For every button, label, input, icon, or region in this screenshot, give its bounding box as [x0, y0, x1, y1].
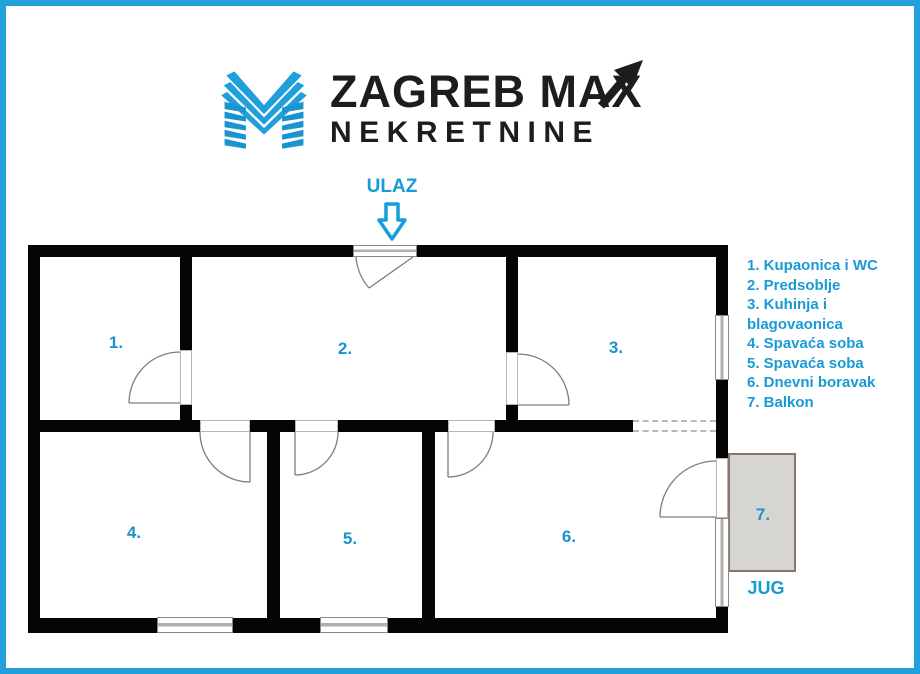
brand-subtitle: NEKRETNINE	[330, 117, 650, 149]
room-label-6: 6.	[562, 527, 576, 547]
wall-segment	[40, 420, 200, 432]
wall-segment	[716, 380, 728, 458]
wall-segment	[233, 618, 320, 633]
window-room3	[715, 315, 729, 380]
room-label-5: 5.	[343, 529, 357, 549]
wall-segment	[388, 618, 728, 633]
wall-segment	[506, 257, 518, 352]
room-label-7: 7.	[756, 505, 770, 525]
door-opening-room1	[180, 350, 192, 405]
door-opening-room6	[448, 420, 495, 432]
window-room4	[157, 617, 233, 633]
wall-segment	[338, 420, 448, 432]
floorplan-page: ZAGREB MAX NEKRETNINE ULAZ	[0, 0, 920, 674]
room-legend: 1. Kupaonica i WC 2. Predsoblje 3. Kuhin…	[747, 256, 905, 412]
wall-segment	[267, 432, 280, 618]
legend-item-5: 5. Spavaća soba	[747, 354, 905, 374]
orientation-label: JUG	[728, 578, 804, 599]
wall-segment	[28, 245, 353, 257]
entrance-door-opening	[353, 245, 417, 257]
door-opening-room4	[200, 420, 250, 432]
wall-segment	[495, 420, 633, 432]
room-label-2: 2.	[338, 339, 352, 359]
wall-segment	[28, 618, 157, 633]
m-logo-icon	[218, 66, 310, 154]
room-label-3: 3.	[609, 338, 623, 358]
room-label-4: 4.	[127, 523, 141, 543]
wall-opening-dashed	[633, 420, 716, 432]
legend-item-7: 7. Balkon	[747, 393, 905, 413]
door-opening-room3	[506, 352, 518, 405]
wall-segment	[250, 420, 295, 432]
legend-item-4: 4. Spavaća soba	[747, 334, 905, 354]
window-balcony	[715, 518, 729, 607]
entrance-label: ULAZ	[352, 176, 432, 198]
door-opening-room5	[295, 420, 338, 432]
door-opening-balcony	[716, 458, 728, 518]
legend-item-2: 2. Predsoblje	[747, 276, 905, 296]
wall-segment	[422, 432, 435, 618]
legend-item-1: 1. Kupaonica i WC	[747, 256, 905, 276]
entrance-arrow-icon	[377, 202, 407, 242]
wall-segment	[28, 245, 40, 633]
wall-segment	[417, 245, 728, 257]
trend-up-arrow-icon	[597, 58, 645, 110]
window-room5	[320, 617, 388, 633]
room-label-1: 1.	[109, 333, 123, 353]
wall-segment	[716, 245, 728, 315]
legend-item-3: 3. Kuhinja i blagovaonica	[747, 295, 905, 334]
legend-item-6: 6. Dnevni boravak	[747, 373, 905, 393]
wall-segment	[180, 257, 192, 350]
